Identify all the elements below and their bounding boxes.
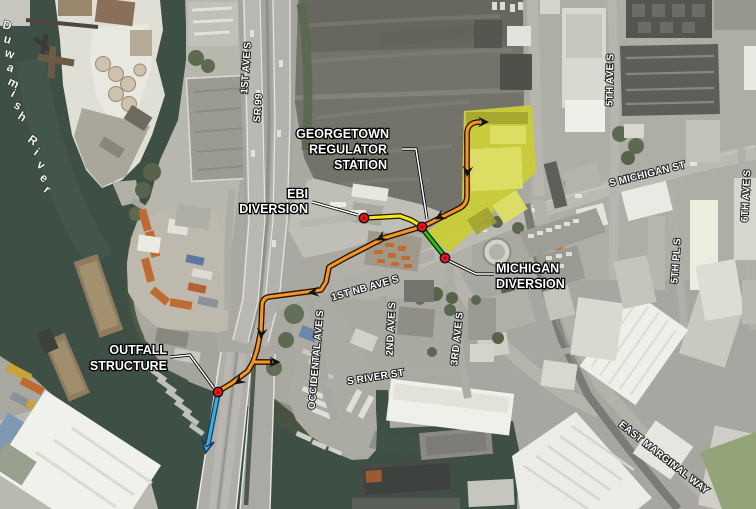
svg-text:DIVERSION: DIVERSION xyxy=(239,202,308,216)
svg-text:MICHIGAN: MICHIGAN xyxy=(496,262,559,276)
svg-text:5TH AVE S: 5TH AVE S xyxy=(605,54,617,107)
svg-text:STATION: STATION xyxy=(334,158,387,172)
svg-text:OUTFALL: OUTFALL xyxy=(109,343,167,357)
svg-text:STRUCTURE: STRUCTURE xyxy=(90,359,167,373)
svg-text:GEORGETOWN: GEORGETOWN xyxy=(296,127,389,141)
svg-text:REGULATOR: REGULATOR xyxy=(309,143,387,157)
svg-text:EBI: EBI xyxy=(287,187,308,201)
svg-text:DIVERSION: DIVERSION xyxy=(496,277,565,291)
svg-text:SR 99: SR 99 xyxy=(252,93,265,123)
